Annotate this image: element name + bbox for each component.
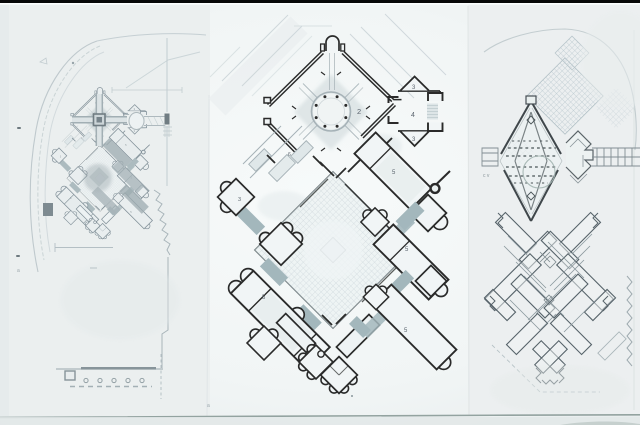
svg-text:c v: c v xyxy=(483,173,490,179)
svg-text:a: a xyxy=(207,403,210,409)
svg-text:a: a xyxy=(17,268,20,274)
